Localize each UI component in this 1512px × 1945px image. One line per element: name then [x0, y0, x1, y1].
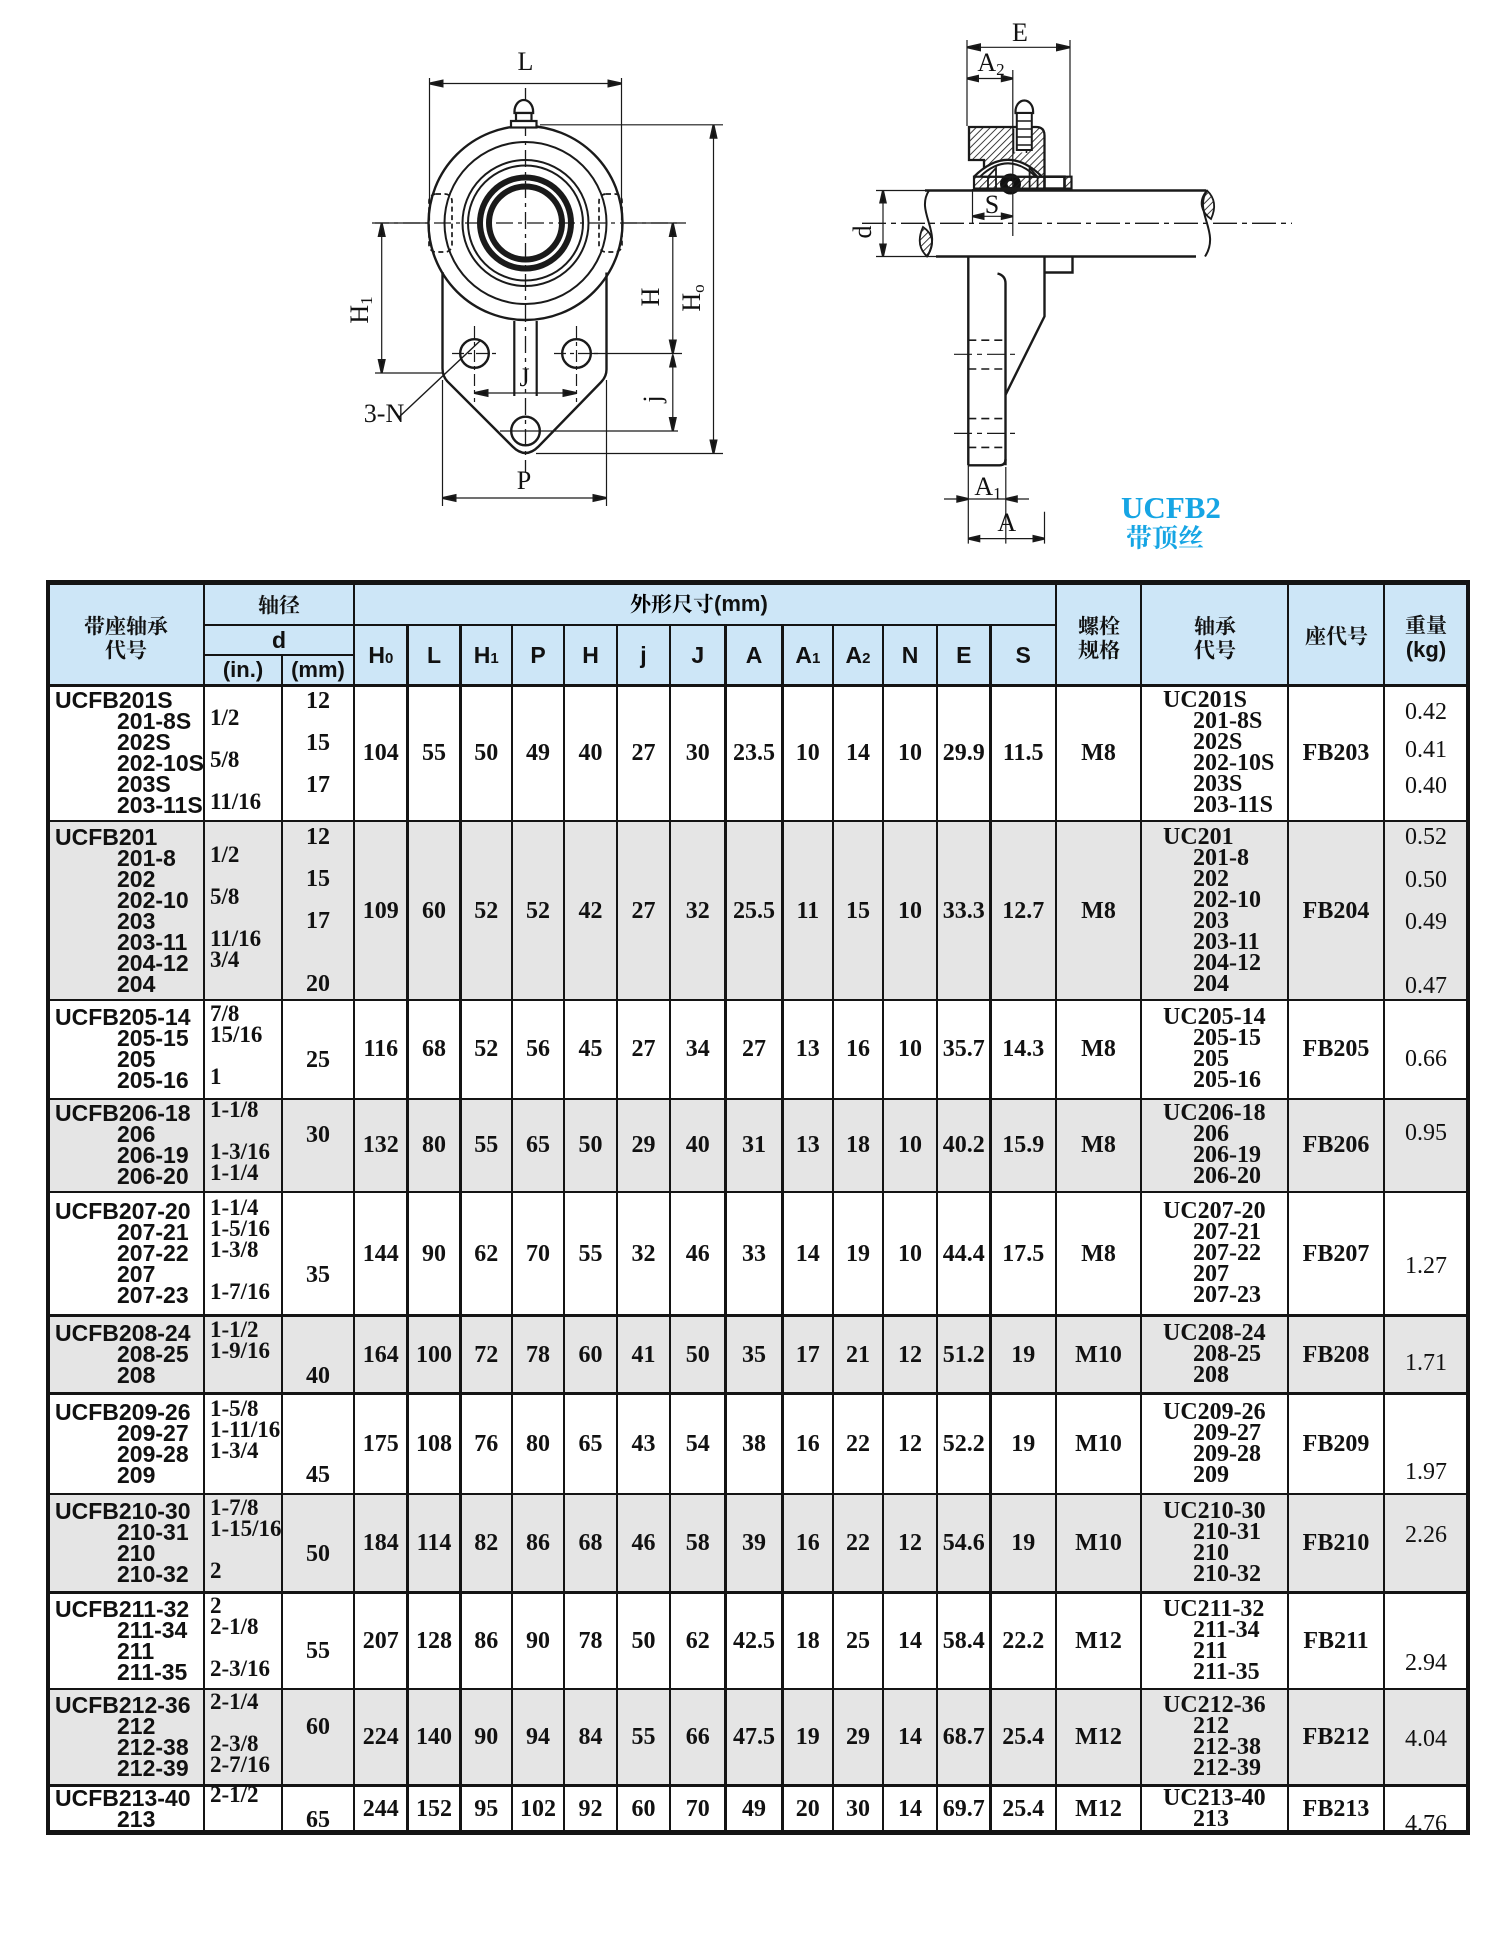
svg-text:P: P: [517, 466, 531, 495]
svg-text:Ho: Ho: [677, 284, 708, 311]
svg-text:d: d: [848, 226, 877, 239]
svg-text:L: L: [518, 47, 534, 76]
svg-text:A1: A1: [974, 472, 1001, 503]
svg-text:J: J: [519, 363, 529, 392]
svg-text:E: E: [1012, 18, 1028, 47]
svg-text:S: S: [985, 190, 999, 219]
svg-text:H1: H1: [345, 296, 376, 323]
svg-text:3-N: 3-N: [364, 399, 405, 428]
svg-text:A: A: [997, 508, 1016, 537]
svg-text:A2: A2: [977, 48, 1004, 79]
svg-text:H: H: [636, 287, 665, 306]
svg-text:UCFB2: UCFB2: [1121, 490, 1221, 525]
svg-text:j: j: [638, 395, 667, 403]
